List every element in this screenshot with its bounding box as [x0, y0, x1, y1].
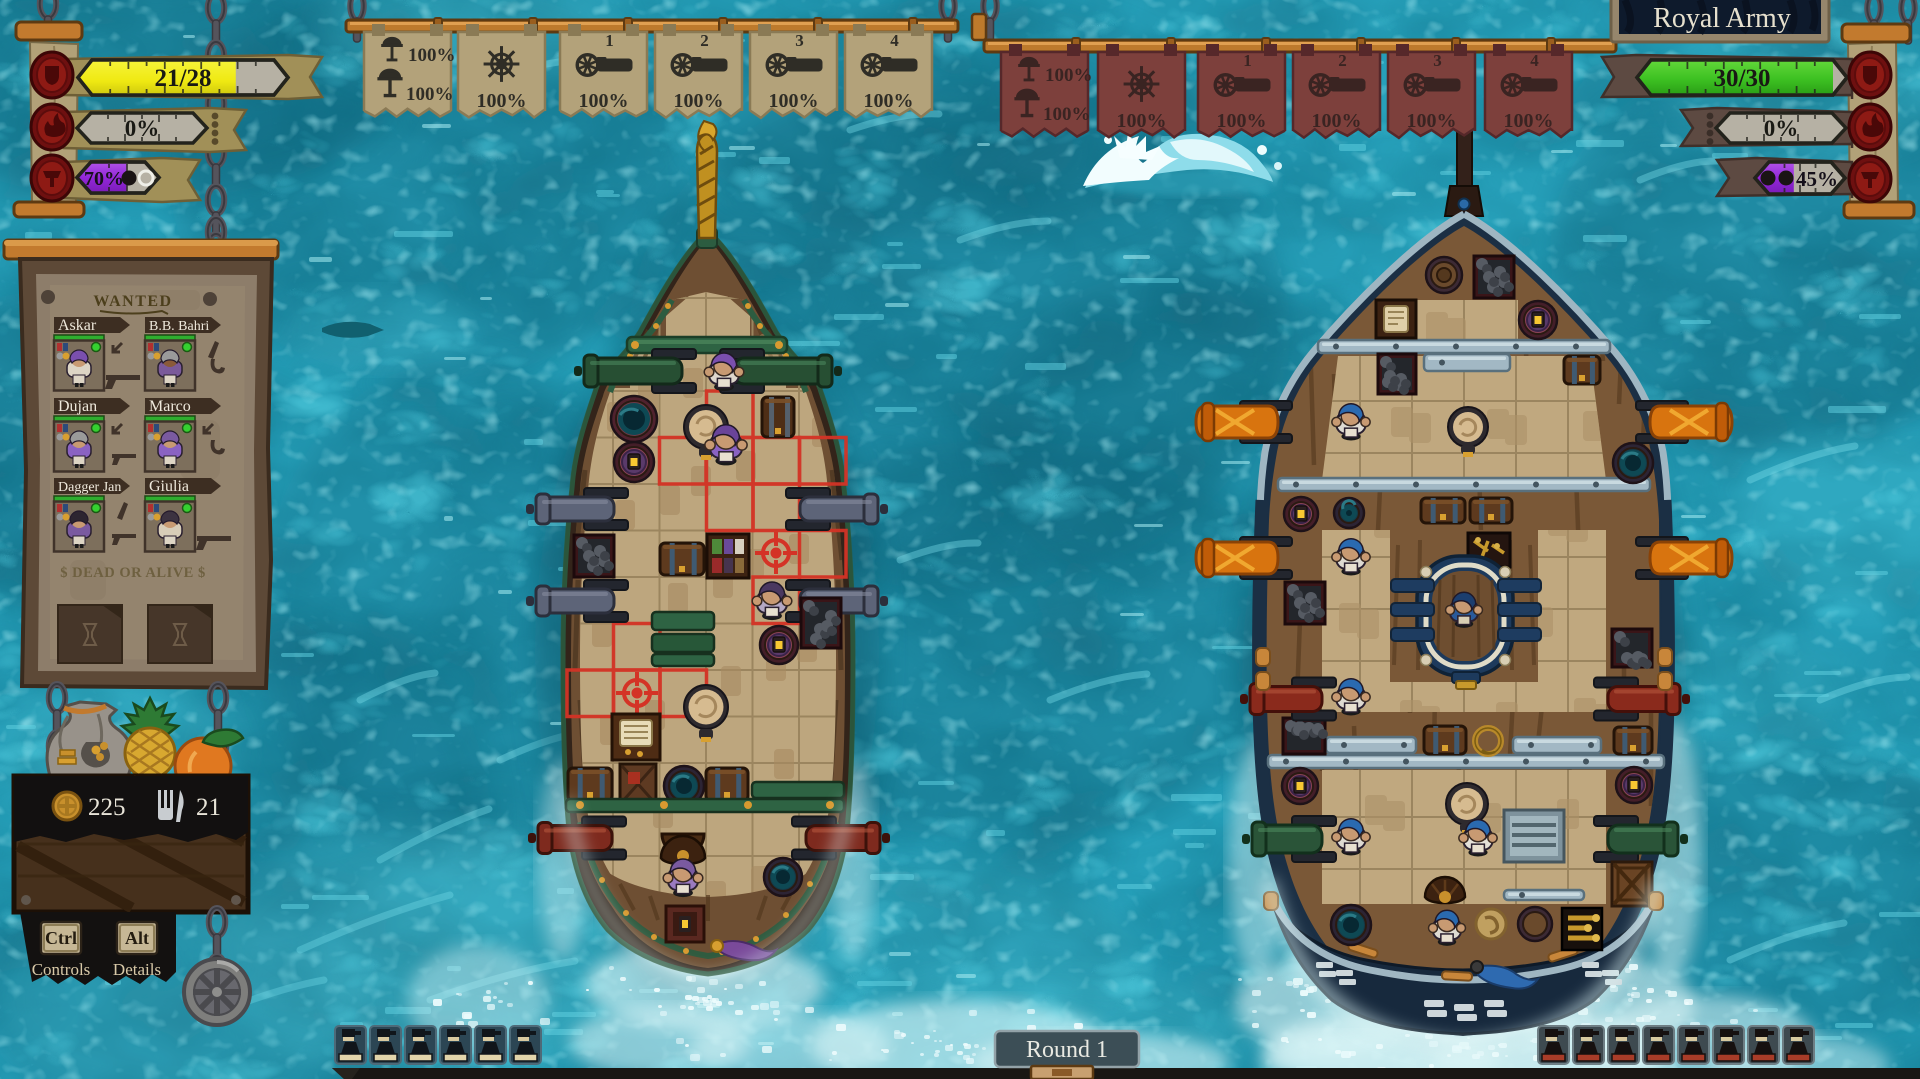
- svg-text:70%: 70%: [84, 168, 124, 190]
- svg-text:3: 3: [795, 31, 804, 50]
- svg-text:100%: 100%: [1312, 110, 1362, 132]
- svg-text:2: 2: [1338, 51, 1347, 70]
- svg-text:21/28: 21/28: [155, 65, 212, 92]
- svg-text:4: 4: [890, 31, 899, 50]
- svg-text:100%: 100%: [1117, 110, 1167, 132]
- svg-text:1: 1: [1243, 51, 1252, 70]
- svg-text:Ctrl: Ctrl: [45, 928, 77, 948]
- svg-text:100%: 100%: [477, 90, 527, 112]
- svg-text:2: 2: [700, 31, 709, 50]
- svg-text:Dujan: Dujan: [58, 398, 97, 415]
- svg-text:Askar: Askar: [58, 317, 97, 334]
- svg-text:Details: Details: [113, 960, 161, 979]
- svg-text:100%: 100%: [864, 90, 914, 112]
- svg-text:30/30: 30/30: [1714, 65, 1771, 92]
- svg-text:100%: 100%: [1217, 110, 1267, 132]
- svg-text:B.B. Bahri: B.B. Bahri: [149, 319, 209, 334]
- svg-text:1: 1: [605, 31, 614, 50]
- svg-text:100%: 100%: [408, 45, 456, 66]
- svg-text:$ DEAD OR ALIVE $: $ DEAD OR ALIVE $: [60, 565, 205, 581]
- svg-text:225: 225: [88, 794, 126, 821]
- svg-text:45%: 45%: [1796, 167, 1838, 191]
- svg-text:4: 4: [1530, 51, 1539, 70]
- svg-text:100%: 100%: [1043, 104, 1091, 125]
- svg-text:Giulia: Giulia: [149, 478, 189, 495]
- svg-text:21: 21: [196, 794, 221, 821]
- svg-text:0%: 0%: [125, 116, 160, 141]
- svg-text:100%: 100%: [579, 90, 629, 112]
- svg-text:Dagger Jan: Dagger Jan: [58, 480, 121, 495]
- svg-text:WANTED: WANTED: [93, 293, 172, 310]
- svg-text:100%: 100%: [769, 90, 819, 112]
- svg-text:100%: 100%: [1407, 110, 1457, 132]
- svg-text:Marco: Marco: [149, 398, 191, 415]
- svg-text:100%: 100%: [406, 84, 454, 105]
- svg-text:0%: 0%: [1764, 116, 1799, 141]
- svg-text:Controls: Controls: [32, 960, 91, 979]
- svg-text:Royal Army: Royal Army: [1653, 3, 1791, 34]
- svg-text:100%: 100%: [674, 90, 724, 112]
- svg-text:Alt: Alt: [125, 928, 149, 948]
- svg-text:3: 3: [1433, 51, 1442, 70]
- svg-text:100%: 100%: [1045, 65, 1093, 86]
- svg-text:Round 1: Round 1: [1026, 1037, 1108, 1063]
- svg-text:100%: 100%: [1504, 110, 1554, 132]
